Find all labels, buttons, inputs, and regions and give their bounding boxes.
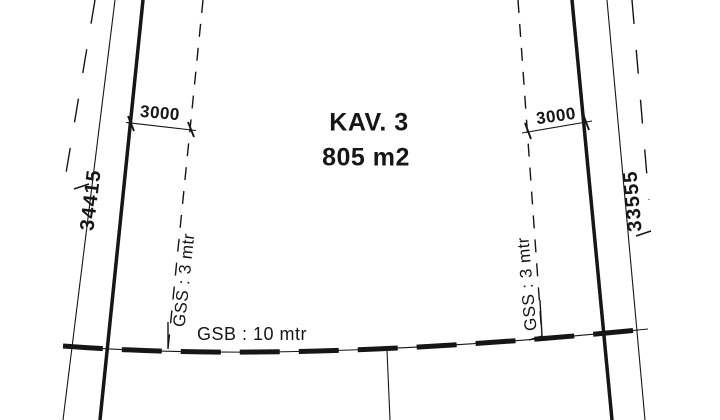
- gsb-building-line: [63, 329, 648, 352]
- width-dimension-line-left: [126, 123, 196, 131]
- division-line-bottom: [387, 350, 390, 420]
- site-plan-canvas: KAV. 3 805 m2 3000 3000 34415 33555 GSS …: [0, 0, 720, 420]
- road-edge-dashed-line-left: [64, 0, 95, 185]
- gsb-setback-label: GSB : 10 mtr: [197, 325, 307, 343]
- plot-title: KAV. 3: [329, 111, 408, 136]
- dimension-text-tick-right: [636, 231, 651, 236]
- plot-boundary-line-left: [100, 0, 143, 420]
- plot-area: 805 m2: [322, 146, 410, 171]
- plan-linework: [0, 0, 720, 420]
- width-dimension-left: 3000: [139, 103, 180, 123]
- dimension-tick: [525, 123, 531, 139]
- side-length-right: 33555: [620, 169, 645, 232]
- plot-boundary-line-right: [572, 0, 612, 420]
